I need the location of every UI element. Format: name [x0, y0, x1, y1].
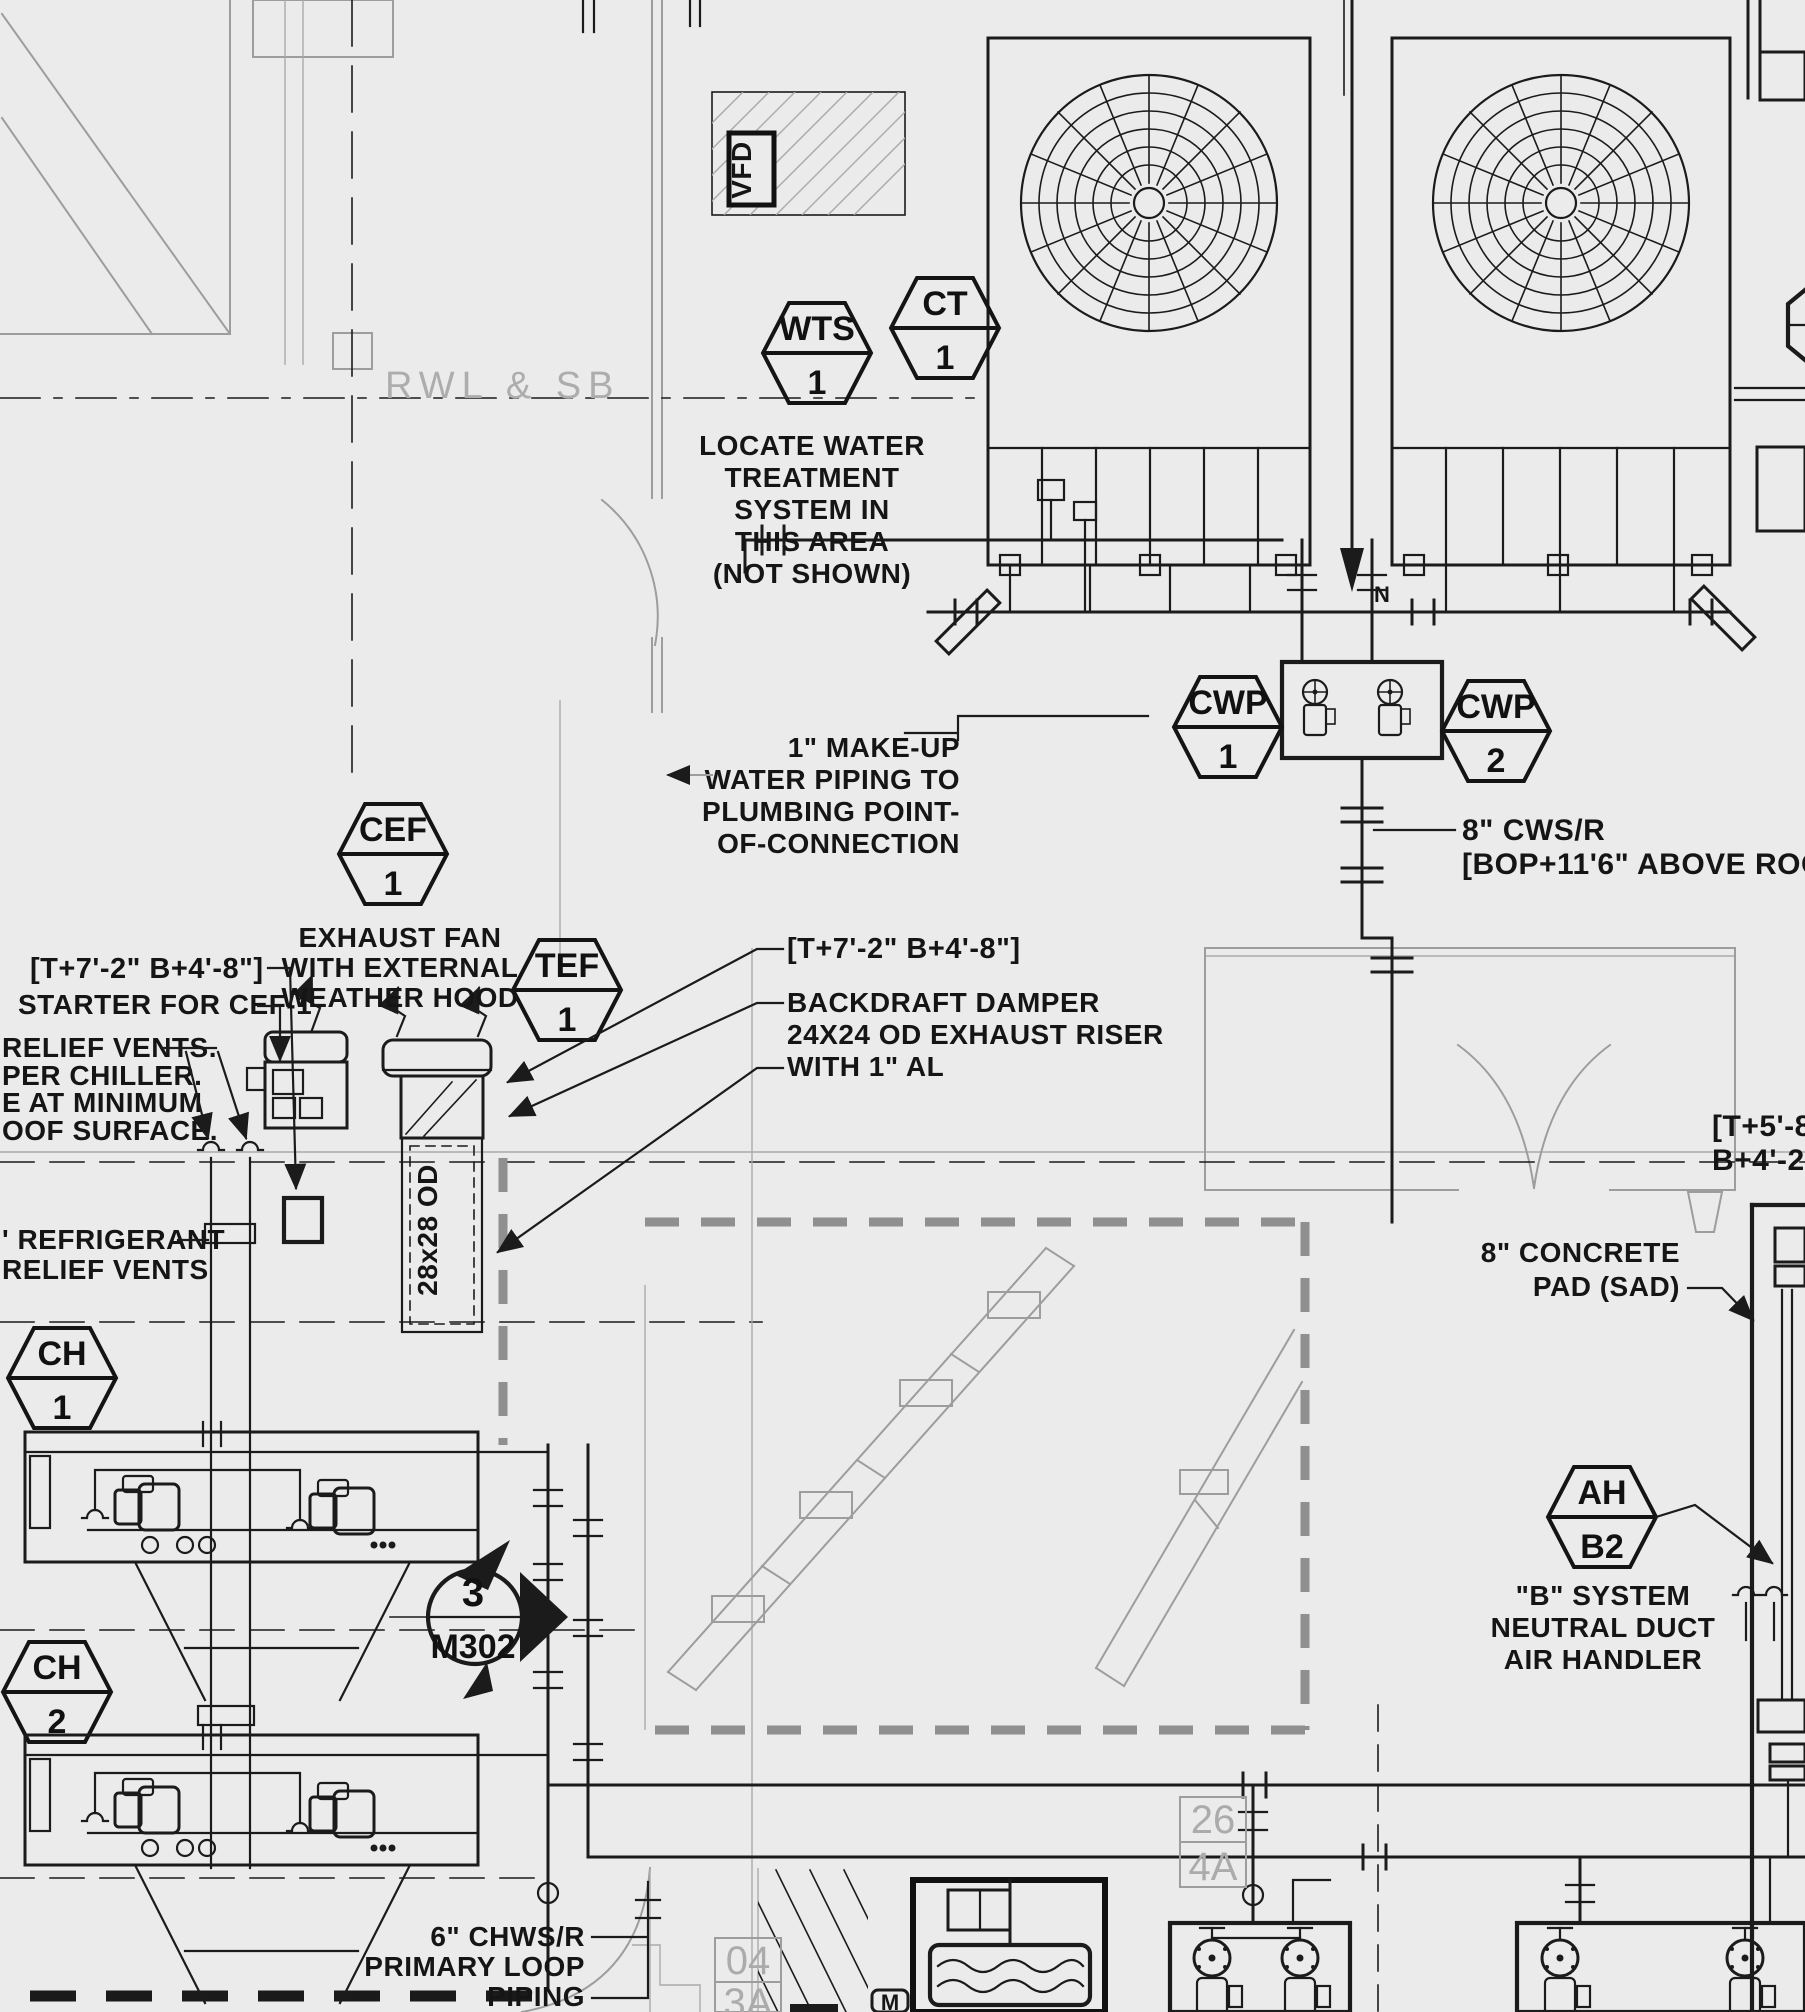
pump-chw [1542, 1928, 1590, 2012]
tag-ah-b2: AH B2 [1548, 1467, 1656, 1567]
motor-label: M [881, 1990, 899, 2012]
note-line: 8" CWS/R [1462, 814, 1605, 847]
duct-size-label: 28x28 OD [412, 1164, 443, 1296]
tag-number: 1 [558, 1001, 577, 1039]
note-cws-r: 8" CWS/R [BOP+11'6" ABOVE ROOF] [1374, 814, 1805, 881]
grid-label: 26 [1191, 1798, 1236, 1842]
vent-hook [1733, 1587, 1759, 1595]
cwp-pump-skid [1282, 662, 1442, 758]
grid-reference-26-4a: 26 4A [1180, 1797, 1246, 1889]
tag-number: 1 [808, 364, 827, 402]
section-number: 3 [462, 1571, 484, 1615]
tag-label: CT [922, 285, 968, 323]
note-coords-edge: [T+5'-8 B+4'-2' [1712, 1110, 1805, 1177]
cef-starter-box [284, 1198, 322, 1242]
note-line: WATER PIPING TO [705, 764, 960, 795]
note-line: 8" CONCRETE [1481, 1237, 1680, 1268]
note-line: BACKDRAFT DAMPER [787, 987, 1100, 1018]
tag-ch-2: CH 2 [3, 1642, 111, 1742]
tag-number: 1 [53, 1389, 72, 1427]
note-line: THIS AREA [735, 526, 889, 557]
mechanical-roof-plan: N WTS 1 CT 1 CWP 1 [0, 0, 1805, 2012]
cooling-tower-1 [988, 38, 1310, 575]
note-line: 24X24 OD EXHAUST RISER [787, 1019, 1164, 1050]
note-line: RELIEF VENTS [2, 1254, 209, 1285]
note-concrete-pad: 8" CONCRETE PAD (SAD) [1481, 1237, 1753, 1320]
note-line: PAD (SAD) [1533, 1271, 1680, 1302]
tag-ct-1: CT 1 [891, 278, 999, 378]
tag-number: 2 [1487, 742, 1506, 780]
vfd-pad: VFD [620, 92, 977, 215]
note-line: WEATHER HOOD [281, 982, 518, 1013]
pump-chw [1282, 1928, 1330, 2012]
tag-label: WTS [779, 310, 855, 348]
tag-ch-1: CH 1 [8, 1328, 116, 1428]
tag-label: CWP [1188, 684, 1267, 722]
note-line: PIPING [487, 1981, 585, 2012]
vertical-riser-north: N [1340, 0, 1390, 607]
cooling-tower-fan [1021, 75, 1277, 331]
north-label: N [1374, 582, 1390, 607]
louver-truss-left [668, 1248, 1074, 1690]
grid-label: 04 [726, 1939, 771, 1983]
note-line: LOCATE WATER [699, 430, 925, 461]
tag-number: 1 [936, 339, 955, 377]
note-locate-wts: LOCATE WATER TREATMENT SYSTEM IN THIS AR… [699, 430, 925, 589]
leader-arrow [498, 1068, 783, 1252]
note-line: NEUTRAL DUCT [1491, 1612, 1716, 1643]
note-line: "B" SYSTEM [1516, 1580, 1691, 1611]
note-line: SYSTEM IN [734, 494, 889, 525]
pump-cwp-1 [1303, 680, 1335, 735]
double-door-arc-right [1534, 1045, 1610, 1188]
note-line: STARTER FOR CEF-1 [18, 989, 312, 1020]
tag-cef-1: CEF 1 [339, 804, 447, 904]
note-line: AIR HANDLER [1504, 1644, 1702, 1675]
leader-arrow [1688, 1288, 1753, 1320]
note-chws: 6" CHWS/R PRIMARY LOOP PIPING [364, 1882, 660, 2012]
tag-label: CEF [359, 811, 427, 849]
pump-cwp-2 [1378, 680, 1410, 735]
section-arrow [463, 1662, 493, 1699]
tag-label: CH [32, 1649, 81, 1687]
chw-pump-skid-2 [1517, 1923, 1805, 2012]
chilled-water-piping [478, 1445, 1805, 1990]
note-line: [T+7'-2" B+4'-8"] [787, 933, 1021, 965]
note-line: [T+7'-2" B+4'-8"] [30, 953, 264, 985]
tag-number: 1 [384, 865, 403, 903]
grid-label: 4A [1189, 1845, 1238, 1889]
note-line: WITH 1" AL [787, 1051, 944, 1082]
note-line: 1" MAKE-UP [788, 732, 960, 763]
note-line: OOF SURFACE. [2, 1115, 218, 1146]
cooling-tower-fan [1433, 75, 1689, 331]
note-line: B+4'-2' [1712, 1144, 1805, 1177]
pump-chw [1194, 1928, 1242, 2012]
rwl-sb-label: RWL & SB [385, 365, 621, 407]
tag-label: AH [1577, 1474, 1626, 1512]
tag-number: 1 [1219, 738, 1238, 776]
tag-number: B2 [1580, 1528, 1623, 1566]
louver-truss-right [1096, 1330, 1302, 1686]
note-relief-vents: RELIEF VENTS. PER CHILLER. E AT MINIMUM … [2, 1032, 246, 1146]
note-b-system: "B" SYSTEM NEUTRAL DUCT AIR HANDLER [1491, 1505, 1772, 1675]
vfd-label: VFD [726, 141, 757, 199]
note-line: TREATMENT [724, 462, 899, 493]
note-line: OF-CONNECTION [717, 828, 960, 859]
cooling-tower-2 [1392, 38, 1730, 575]
tag-cwp-1: CWP 1 [1174, 677, 1282, 777]
tag-wts-1: WTS 1 [763, 303, 871, 403]
compressor [310, 1783, 374, 1837]
section-arrow [520, 1572, 568, 1662]
note-line: EXHAUST FAN [298, 922, 501, 953]
leader-arrow [1656, 1505, 1772, 1563]
mechanical-well [503, 1158, 1305, 1730]
tag-tef-1: TEF 1 [513, 940, 621, 1040]
section-sheet: M302 [430, 1628, 515, 1666]
note-line: PLUMBING POINT- [702, 796, 960, 827]
note-refrigerant: ' REFRIGERANT RELIEF VENTS [2, 1224, 225, 1285]
tag-label: CH [37, 1335, 86, 1373]
leader-arrow [218, 1052, 246, 1138]
door-swing-arc [602, 500, 658, 645]
compressor [115, 1476, 179, 1530]
chw-pump-skid-1 [1170, 1923, 1350, 2012]
tef-1-fan: 28x28 OD [383, 988, 491, 1332]
grid-reference-04-3a: 04 3A [715, 1938, 781, 2012]
grid-label: 3A [724, 1981, 773, 2012]
tag-label: CWP [1456, 688, 1535, 726]
note-line: [T+5'-8 [1712, 1110, 1805, 1143]
note-exhaust-fan: EXHAUST FAN WITH EXTERNAL WEATHER HOOD [281, 922, 518, 1013]
note-line: WITH EXTERNAL [282, 952, 519, 983]
plan-drawing: N WTS 1 CT 1 CWP 1 [0, 0, 1805, 2012]
vent-hook [82, 1813, 108, 1821]
note-line: PRIMARY LOOP [364, 1951, 585, 1982]
down-arrowhead [1340, 548, 1364, 592]
note-line: (NOT SHOWN) [713, 558, 911, 589]
tag-cwp-2: CWP 2 [1442, 681, 1550, 781]
note-line: E AT MINIMUM [2, 1087, 202, 1118]
compressor [310, 1480, 374, 1534]
tag-label: TEF [535, 947, 599, 985]
vent-hook [82, 1510, 108, 1518]
vent-hook [237, 1142, 263, 1150]
note-line: 6" CHWS/R [430, 1921, 585, 1952]
note-makeup-water: 1" MAKE-UP WATER PIPING TO PLUMBING POIN… [668, 716, 1148, 859]
note-line: [BOP+11'6" ABOVE ROOF] [1462, 848, 1805, 881]
compressor [115, 1779, 179, 1833]
double-door-arc-left [1458, 1045, 1534, 1188]
